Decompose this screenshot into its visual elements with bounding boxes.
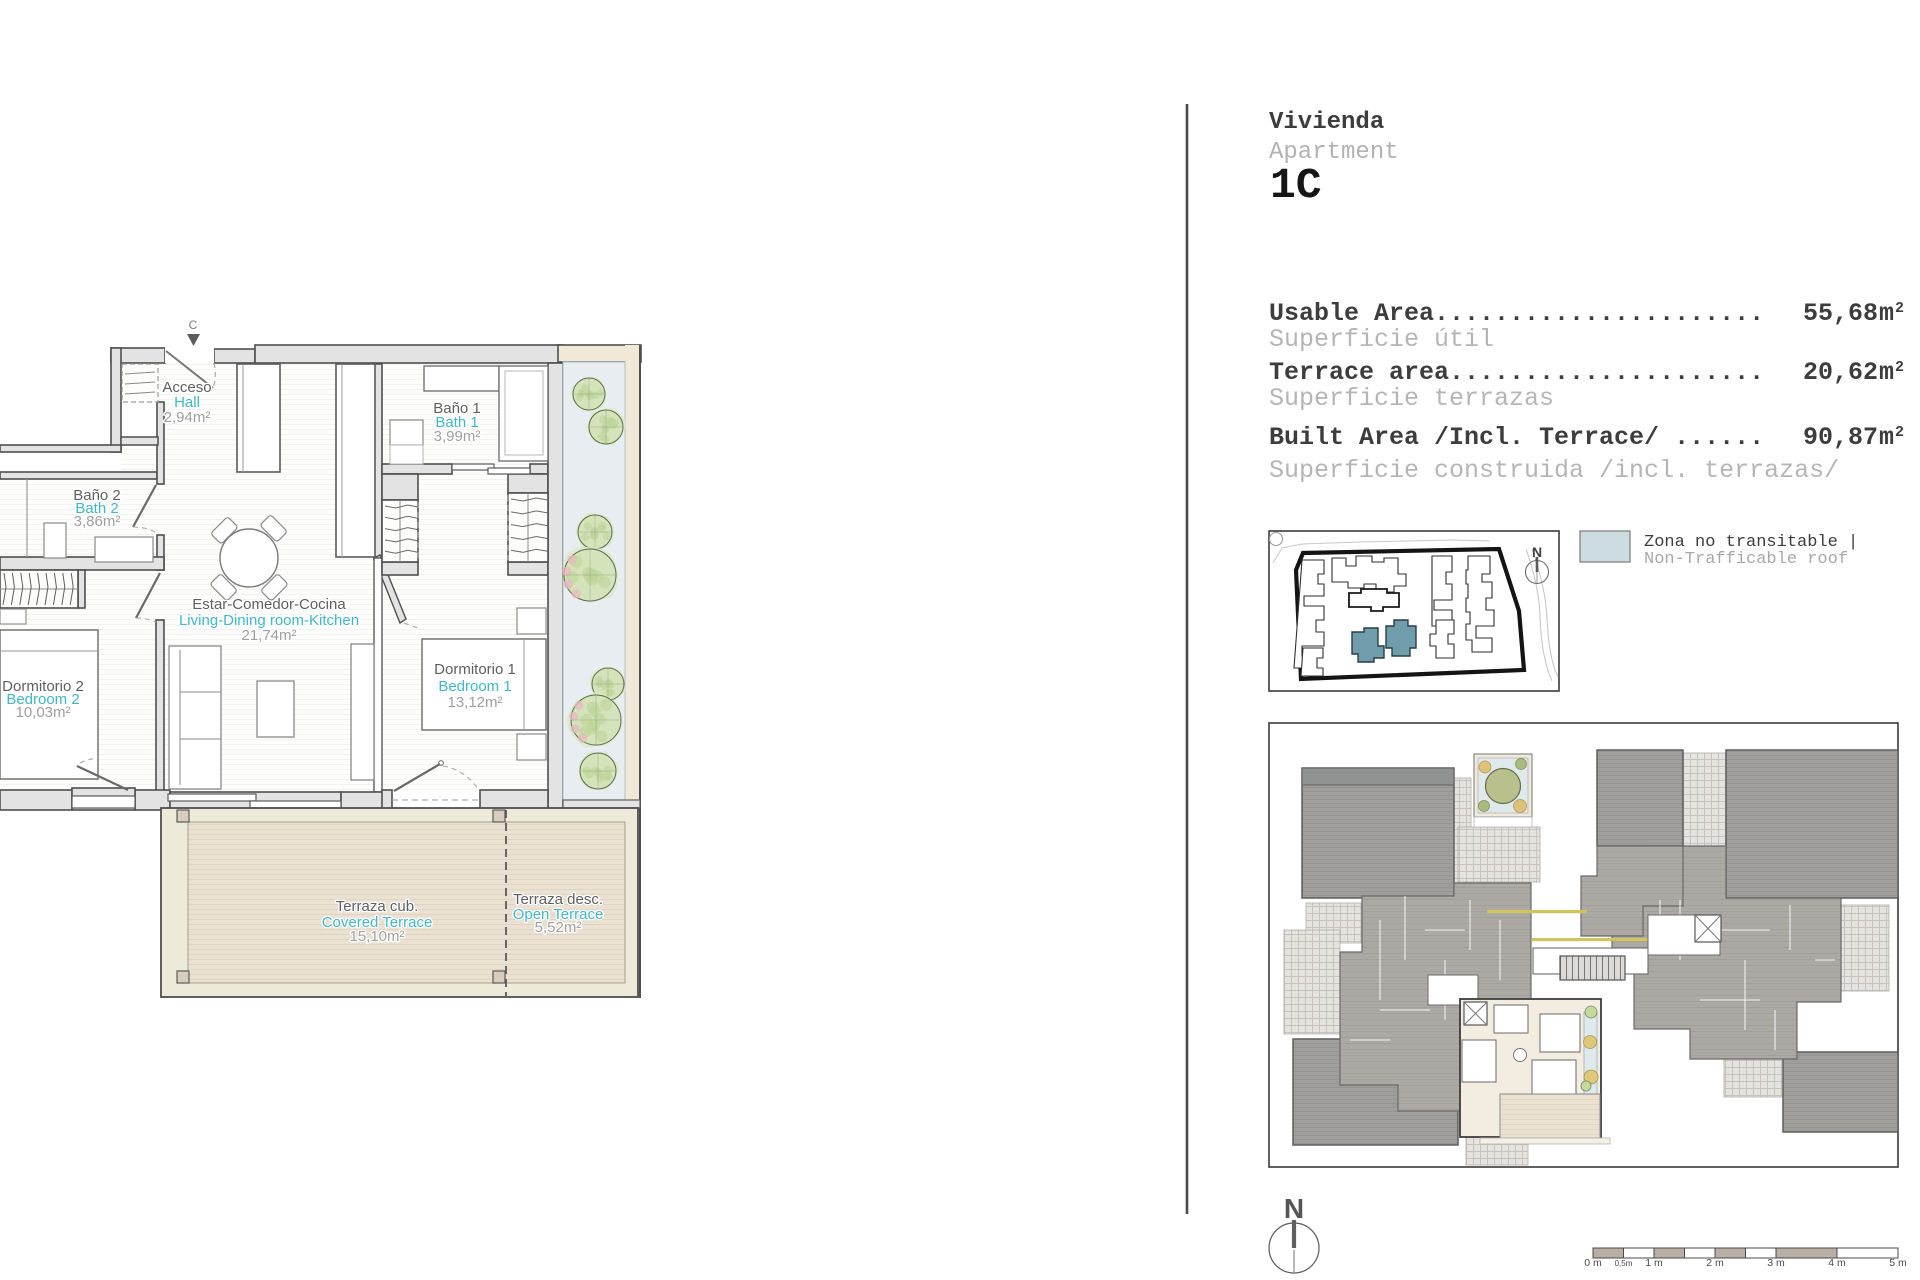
- svg-text:4 m: 4 m: [1828, 1257, 1846, 1269]
- svg-text:Estar-Comedor-Cocina: Estar-Comedor-Cocina: [192, 596, 346, 613]
- svg-text:15,10m²: 15,10m²: [349, 928, 404, 945]
- svg-text:C: C: [189, 318, 198, 332]
- svg-text:m: m: [1879, 423, 1894, 452]
- svg-text:3,99m²: 3,99m²: [434, 428, 481, 445]
- svg-text:Vivienda: Vivienda: [1269, 109, 1384, 136]
- svg-text:10,03m²: 10,03m²: [15, 704, 70, 721]
- svg-text:m: m: [1879, 358, 1894, 387]
- svg-text:0 m: 0 m: [1584, 1257, 1602, 1269]
- svg-text:Superficie terrazas: Superficie terrazas: [1269, 384, 1554, 413]
- svg-text:Bedroom 1: Bedroom 1: [438, 678, 511, 695]
- svg-text:90,87: 90,87: [1803, 423, 1878, 452]
- svg-text:21,74m²: 21,74m²: [241, 627, 296, 644]
- svg-text:2: 2: [1895, 424, 1904, 441]
- svg-text:Superficie construida /incl. t: Superficie construida /incl. terrazas/: [1269, 456, 1839, 485]
- svg-text:Superficie útil: Superficie útil: [1269, 325, 1494, 354]
- svg-text:Usable Area...................: Usable Area......................: [1269, 299, 1764, 328]
- svg-text:5 m: 5 m: [1889, 1257, 1907, 1269]
- svg-text:13,12m²: 13,12m²: [447, 694, 502, 711]
- svg-text:N: N: [1284, 1193, 1304, 1224]
- svg-text:3 m: 3 m: [1767, 1257, 1785, 1269]
- svg-text:0,5m: 0,5m: [1615, 1259, 1633, 1268]
- svg-text:55,68: 55,68: [1803, 299, 1878, 328]
- svg-text:2: 2: [1895, 359, 1904, 376]
- svg-text:3,86m²: 3,86m²: [74, 513, 121, 530]
- svg-text:Terraza cub.: Terraza cub.: [336, 898, 419, 915]
- svg-text:1 m: 1 m: [1645, 1257, 1663, 1269]
- svg-text:Non-Trafficable roof: Non-Trafficable roof: [1644, 550, 1848, 569]
- svg-text:Dormitorio 1: Dormitorio 1: [434, 661, 516, 678]
- svg-text:Built Area /Incl. Terrace/ ...: Built Area /Incl. Terrace/ ......: [1269, 423, 1764, 452]
- svg-text:m: m: [1879, 299, 1894, 328]
- svg-text:2,94m²: 2,94m²: [164, 409, 211, 426]
- svg-text:1C: 1C: [1270, 161, 1322, 210]
- svg-text:20,62: 20,62: [1803, 358, 1878, 387]
- svg-text:5,52m²: 5,52m²: [535, 919, 582, 936]
- svg-text:2 m: 2 m: [1706, 1257, 1724, 1269]
- svg-text:2: 2: [1895, 300, 1904, 317]
- svg-text:Terrace area..................: Terrace area.....................: [1269, 358, 1764, 387]
